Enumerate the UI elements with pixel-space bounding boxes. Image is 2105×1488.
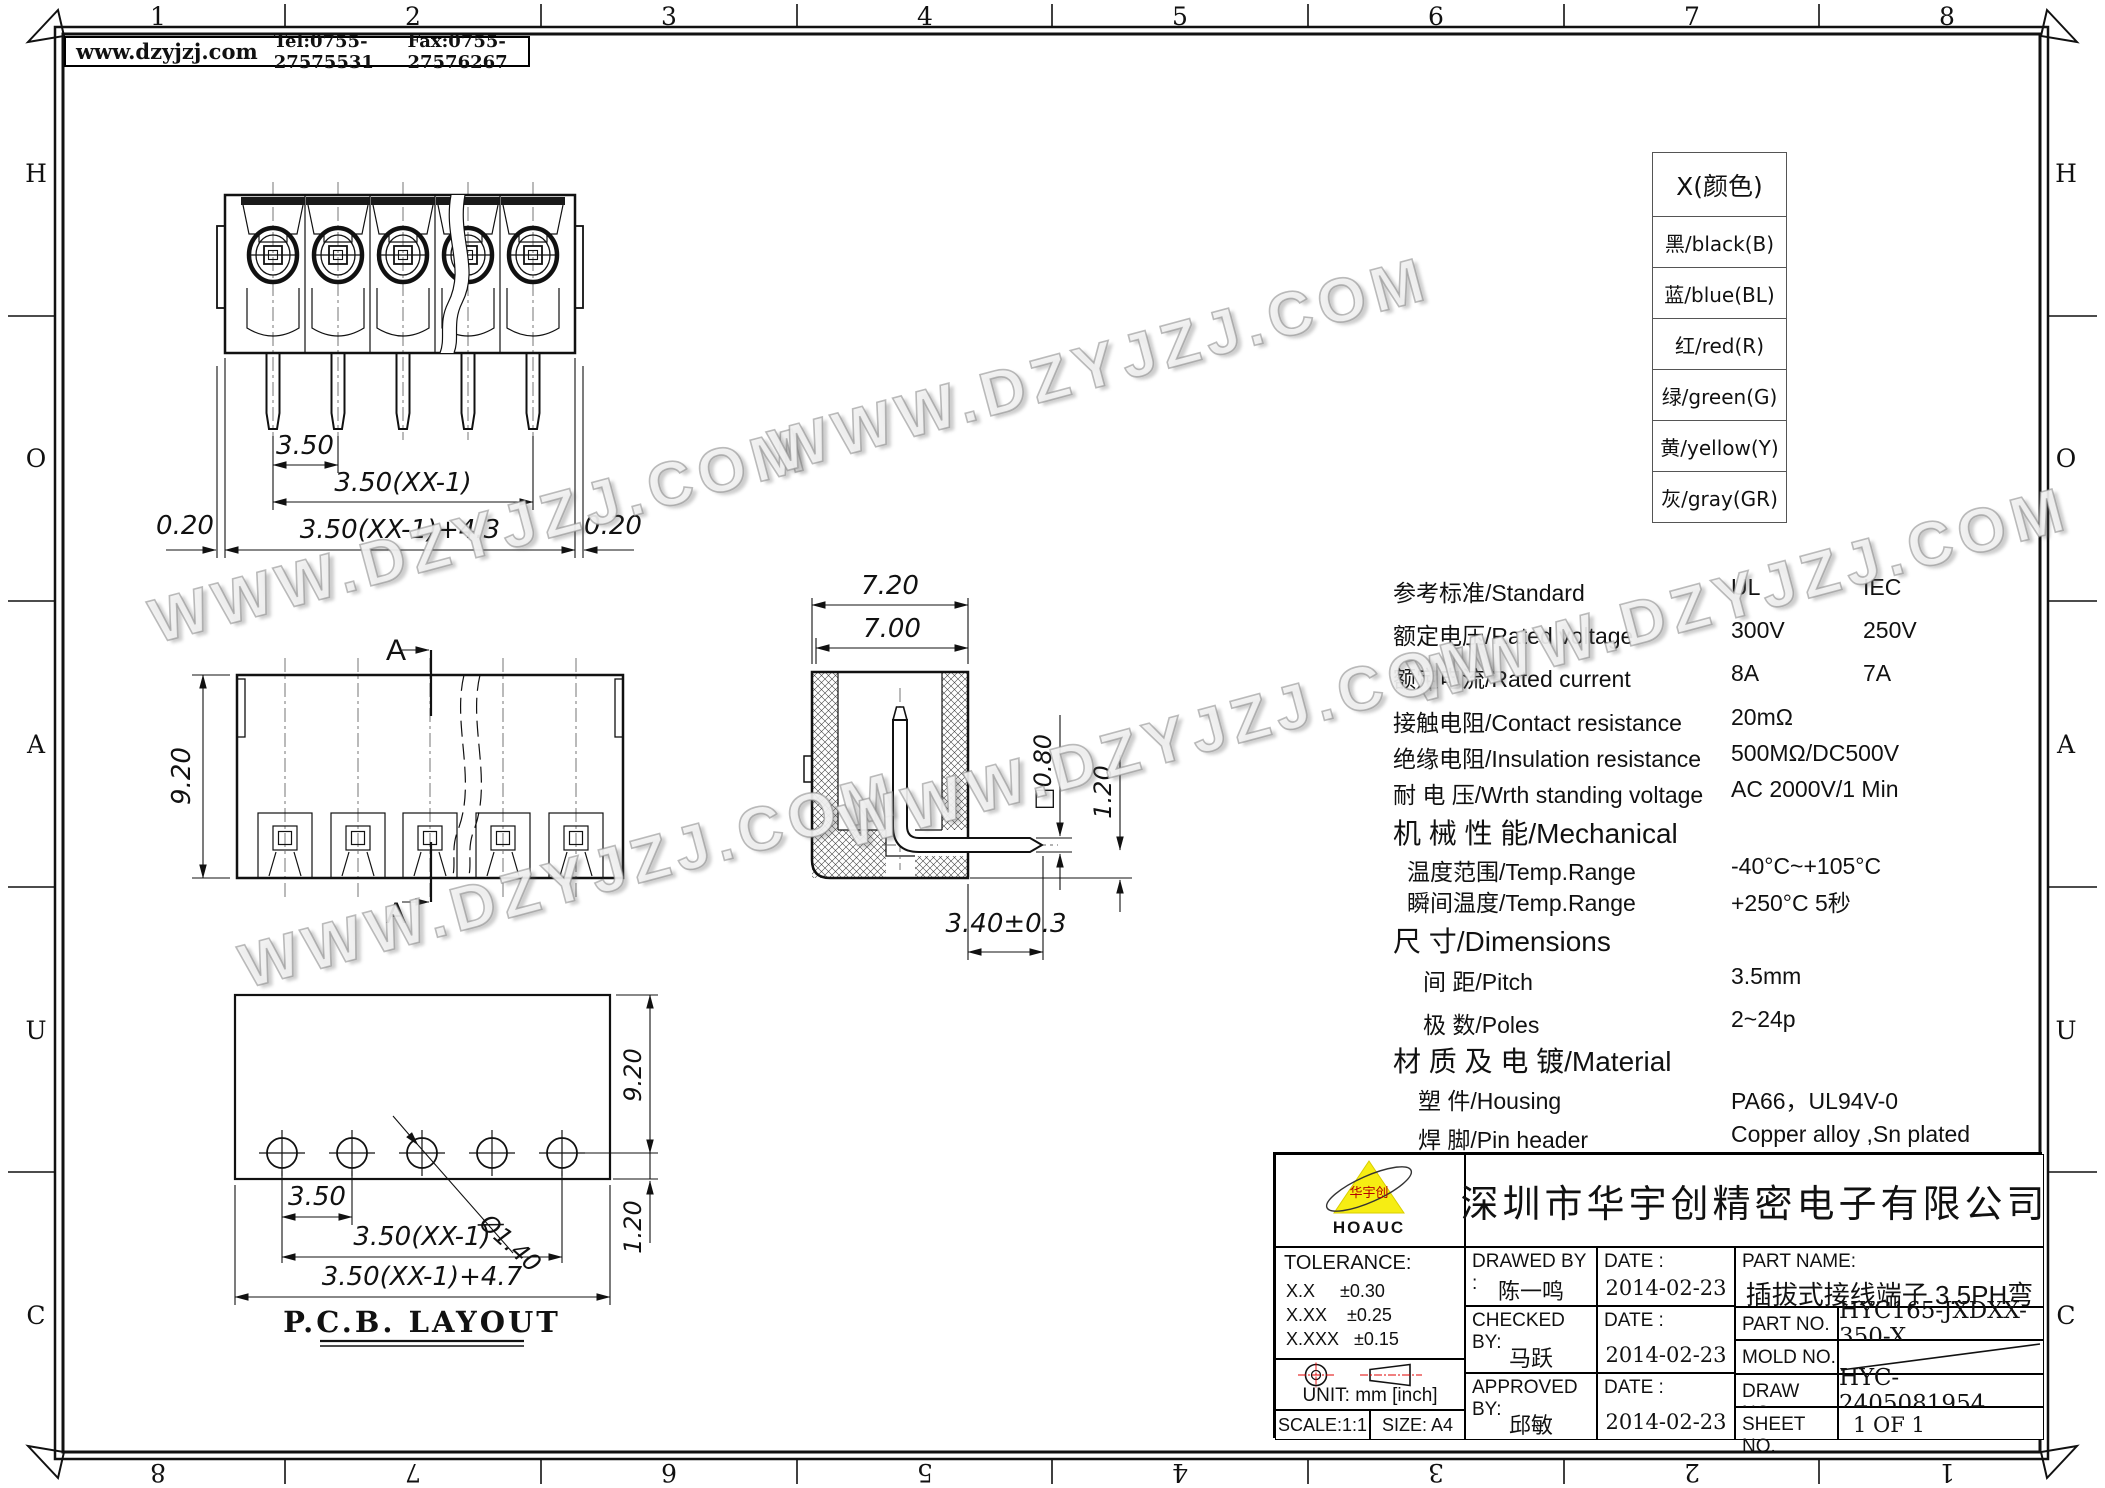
zone-number: 1 (1939, 1458, 1955, 1487)
company-name: 深圳市华宇创精密电子有限公司 (1461, 1173, 2049, 1228)
tolerance-values: X.X ±0.30 X.XX ±0.25 X.XXX ±0.15 (1276, 1275, 1464, 1351)
zone-letter: O (26, 444, 47, 473)
tolerance-label: TOLERANCE: (1276, 1248, 1464, 1275)
spec-label: 机 械 性 能/Mechanical (1393, 812, 1678, 852)
zone-number: 5 (917, 1458, 933, 1487)
dim-width-outer: 7.20 (861, 571, 919, 601)
company-website: www.dzyjzj.com (76, 39, 258, 64)
dim-pitch: 3.50 (276, 431, 334, 461)
date-label: DATE : (1598, 1307, 1734, 1332)
dim-pcb-overall: 3.50(XX-1)+4.7 (322, 1262, 523, 1292)
mold-no-label: MOLD NO. (1736, 1341, 1837, 1369)
pcb-dimensions: Ø1.40 3.50 3.50(XX-1) 3.50(XX-1)+4.7 9.2… (235, 995, 658, 1305)
section-dimensions: 7.20 7.00 □0.80 1.20 3.40±0.3 (812, 571, 1132, 960)
zone-number: 7 (405, 1458, 421, 1487)
dim-pcb-offset: 1.20 (619, 1200, 647, 1253)
spec-label: 额定电压/Rated voltage (1393, 617, 1633, 651)
checked-by-name: 马跃 (1466, 1341, 1596, 1373)
tolerance-cell: TOLERANCE: X.X ±0.30 X.XX ±0.25 X.XXX ±0… (1275, 1247, 1465, 1359)
spec-row: 极 数/Poles2~24p (1390, 1006, 2090, 1036)
zone-letter: O (2056, 444, 2077, 473)
section-label-a-bottom: A (386, 897, 406, 930)
hole (259, 1130, 305, 1176)
spec-section-heading: 机 械 性 能/Mechanical (1390, 812, 2090, 842)
spec-value: IEC (1863, 574, 1901, 601)
pcb-title: P.C.B. LAYOUT (283, 1305, 561, 1346)
spec-row: 温度范围/Temp.Range-40°C~+105°C (1390, 853, 2090, 883)
spec-label: 参考标准/Standard (1393, 574, 1585, 608)
zone-number: 3 (1428, 1458, 1444, 1487)
dim-pcb-pitch: 3.50 (288, 1182, 346, 1212)
drawing-sheet: 1 2 3 4 5 6 7 8 8 7 6 5 4 3 2 1 H O A U … (0, 0, 2105, 1488)
zone-number: 1 (150, 2, 166, 31)
logo-mark-text: 华宇创 (1349, 1185, 1388, 1200)
approved-by-name: 邱敏 (1466, 1408, 1596, 1440)
color-row-yellow: 黄/yellow(Y) (1652, 421, 1787, 472)
zone-letter: U (25, 1016, 46, 1045)
approved-by-cell: APPROVED BY: 邱敏 (1465, 1373, 1597, 1440)
company-name-cell: 深圳市华宇创精密电子有限公司 (1465, 1154, 2044, 1247)
hole (539, 1130, 585, 1176)
zone-letter: C (2056, 1301, 2075, 1330)
spec-value: 8A (1731, 660, 1759, 687)
spec-row: 接触电阻/Contact resistance20mΩ (1390, 704, 2090, 734)
spec-value: 500MΩ/DC500V (1731, 740, 1899, 767)
dim-pcb-span: 3.50(XX-1) (353, 1222, 490, 1252)
header-box: www.dzyjzj.com Tel:0755-27575531 Fax:075… (64, 36, 530, 67)
zone-letter: H (25, 159, 47, 188)
spec-section-heading: 尺 寸/Dimensions (1390, 920, 2090, 950)
part-no-value-cell: HYC165-JXDXX-350-X (1838, 1307, 2044, 1340)
scale-cell: SCALE:1:1 (1275, 1410, 1370, 1440)
pcb-layout-title: P.C.B. LAYOUT (283, 1305, 561, 1339)
spec-value: Copper alloy ,Sn plated (1731, 1121, 1970, 1148)
date-label: DATE : (1598, 1374, 1734, 1399)
drawed-by-cell: DRAWED BY : 陈一鸣 (1465, 1247, 1597, 1306)
spec-value: AC 2000V/1 Min (1731, 776, 1898, 803)
spec-label: 额定电流/Rated current (1393, 660, 1631, 694)
color-row-gray: 灰/gray(GR) (1652, 472, 1787, 523)
zone-number: 7 (1684, 2, 1700, 31)
sheet-no-label: SHEET NO. (1736, 1408, 1837, 1458)
size-value: SIZE: A4 (1382, 1415, 1453, 1436)
company-logo: 华宇创 HOAUC (1276, 1155, 1462, 1244)
projection-cell: UNIT: mm [inch] (1275, 1359, 1465, 1410)
pcb-layout-view: Ø1.40 3.50 3.50(XX-1) 3.50(XX-1)+4.7 9.2… (180, 985, 700, 1360)
spec-label: 尺 寸/Dimensions (1393, 920, 1611, 960)
spec-label: 材 质 及 电 镀/Material (1393, 1040, 1671, 1080)
zone-number: 6 (661, 1458, 677, 1487)
drawed-date-cell: DATE : 2014-02-23 (1597, 1247, 1735, 1306)
section-marks: A A (386, 634, 431, 930)
front-view-dimensions: 3.50 3.50(XX-1) 3.50(XX-1)+4.3 0.20 0.20 (156, 358, 642, 558)
date-label: DATE : (1598, 1248, 1734, 1273)
part-no-label-cell: PART NO. (1735, 1307, 1838, 1340)
zone-number: 4 (917, 2, 933, 31)
mold-no-label-cell: MOLD NO. (1735, 1340, 1838, 1374)
spec-value: -40°C~+105°C (1731, 853, 1881, 880)
drawed-date: 2014-02-23 (1598, 1276, 1734, 1300)
spec-row: 额定电压/Rated voltage300V250V (1390, 617, 2090, 647)
hole (329, 1130, 375, 1176)
company-tel: Tel:0755-27575531 (274, 31, 392, 73)
zone-letter: A (26, 730, 46, 759)
spec-value: UL (1731, 574, 1760, 601)
spec-value: 2~24p (1731, 1006, 1796, 1033)
sheet-no-value: 1 OF 1 (1853, 1413, 1925, 1437)
company-fax: Fax:0755-27576267 (407, 31, 528, 73)
front-view: 3.50 3.50(XX-1) 3.50(XX-1)+4.3 0.20 0.20 (150, 138, 710, 575)
spec-label: 间 距/Pitch (1423, 963, 1533, 997)
dim-height: 9.20 (167, 747, 197, 805)
spec-row: 塑 件/HousingPA66，UL94V-0 (1390, 1082, 2090, 1112)
break-line (440, 195, 469, 353)
pcb-holes (259, 1130, 585, 1176)
zone-number: 5 (1172, 2, 1188, 31)
spec-label: 极 数/Poles (1423, 1006, 1539, 1040)
scale-value: SCALE:1:1 (1278, 1415, 1367, 1436)
zone-number: 8 (150, 1458, 166, 1487)
color-code-table: X(颜色) 黑/black(B) 蓝/blue(BL) 红/red(R) 绿/g… (1652, 152, 1787, 523)
spec-value: PA66，UL94V-0 (1731, 1082, 1898, 1116)
spec-value: 250V (1863, 617, 1917, 644)
draw-no-value-cell: HYC-2405081954 (1838, 1374, 2044, 1407)
dim-width-inner: 7.00 (863, 614, 921, 644)
zone-number: 2 (1684, 1458, 1700, 1487)
part-no-label: PART NO. (1736, 1308, 1837, 1336)
checked-date: 2014-02-23 (1598, 1343, 1734, 1367)
spec-row: 绝缘电阻/Insulation resistance500MΩ/DC500V (1390, 740, 2090, 770)
draw-no-label-cell: DRAW NO: (1735, 1374, 1838, 1407)
zone-number: 4 (1172, 1458, 1188, 1487)
spec-label: 塑 件/Housing (1418, 1082, 1561, 1116)
spec-row: 耐 电 压/Wrth standing voltageAC 2000V/1 Mi… (1390, 776, 2090, 806)
spec-row: 参考标准/StandardULIEC (1390, 574, 2090, 604)
spec-label: 绝缘电阻/Insulation resistance (1393, 740, 1701, 774)
zone-number: 8 (1939, 2, 1955, 31)
section-view: 7.20 7.00 □0.80 1.20 3.40±0.3 (790, 560, 1170, 1000)
color-row-black: 黑/black(B) (1652, 217, 1787, 268)
drawed-by-name: 陈一鸣 (1466, 1274, 1596, 1306)
spec-value: +250°C 5秒 (1731, 884, 1851, 918)
dim-overall: 3.50(XX-1)+4.3 (300, 515, 500, 545)
color-row-green: 绿/green(G) (1652, 370, 1787, 421)
approved-date: 2014-02-23 (1598, 1410, 1734, 1434)
sheet-no-label-cell: SHEET NO. (1735, 1407, 1838, 1440)
color-table-title: X(颜色) (1652, 152, 1787, 217)
spec-section-heading: 材 质 及 电 镀/Material (1390, 1040, 2090, 1070)
top-view-dimensions: 9.20 (167, 675, 230, 878)
size-cell: SIZE: A4 (1370, 1410, 1465, 1440)
spec-row: 瞬间温度/Temp.Range+250°C 5秒 (1390, 884, 2090, 914)
spec-label: 焊 脚/Pin header (1418, 1121, 1588, 1155)
checked-date-cell: DATE : 2014-02-23 (1597, 1306, 1735, 1373)
dim-edge-left: 0.20 (156, 511, 214, 541)
spec-label: 接触电阻/Contact resistance (1393, 704, 1682, 738)
spec-value: 20mΩ (1731, 704, 1793, 731)
sheet-no-value-cell: 1 OF 1 (1838, 1407, 2044, 1440)
spec-label: 耐 电 压/Wrth standing voltage (1393, 776, 1703, 810)
zone-number: 6 (1428, 2, 1444, 31)
spec-value: 3.5mm (1731, 963, 1801, 990)
approved-date-cell: DATE : 2014-02-23 (1597, 1373, 1735, 1440)
logo-brand-text: HOAUC (1333, 1218, 1405, 1237)
dim-span: 3.50(XX-1) (334, 468, 471, 498)
spec-label: 瞬间温度/Temp.Range (1407, 884, 1636, 918)
dim-edge-right: 0.20 (584, 511, 642, 541)
checked-by-cell: CHECKED BY: 马跃 (1465, 1306, 1597, 1373)
spec-label: 温度范围/Temp.Range (1407, 853, 1636, 887)
zone-letter: H (2055, 159, 2077, 188)
part-name-label: PART NAME: (1736, 1248, 2043, 1273)
top-view: A A 9.20 (150, 630, 710, 930)
spec-list: 参考标准/StandardULIEC 额定电压/Rated voltage300… (1390, 560, 2090, 1160)
spec-row: 额定电流/Rated current8A7A (1390, 660, 2090, 690)
spec-value: 300V (1731, 617, 1785, 644)
spec-row: 焊 脚/Pin headerCopper alloy ,Sn plated (1390, 1121, 2090, 1151)
hole (399, 1130, 445, 1176)
color-row-red: 红/red(R) (1652, 319, 1787, 370)
dim-pcb-height: 9.20 (619, 1048, 647, 1101)
logo-cell: 华宇创 HOAUC (1275, 1154, 1465, 1247)
title-block: 华宇创 HOAUC 深圳市华宇创精密电子有限公司 TOLERANCE: X.X … (1273, 1152, 2042, 1438)
dim-pin-square: □0.80 (1029, 734, 1057, 810)
dim-pin-length: 3.40±0.3 (945, 909, 1066, 939)
spec-row: 间 距/Pitch3.5mm (1390, 963, 2090, 993)
unit-label: UNIT: mm [inch] (1276, 1385, 1464, 1407)
zone-number: 3 (661, 2, 677, 31)
color-row-blue: 蓝/blue(BL) (1652, 268, 1787, 319)
zone-letter: C (26, 1301, 45, 1330)
zone-number: 2 (405, 2, 421, 31)
dim-pin-offset: 1.20 (1089, 765, 1117, 818)
spec-value: 7A (1863, 660, 1891, 687)
hole (469, 1130, 515, 1176)
